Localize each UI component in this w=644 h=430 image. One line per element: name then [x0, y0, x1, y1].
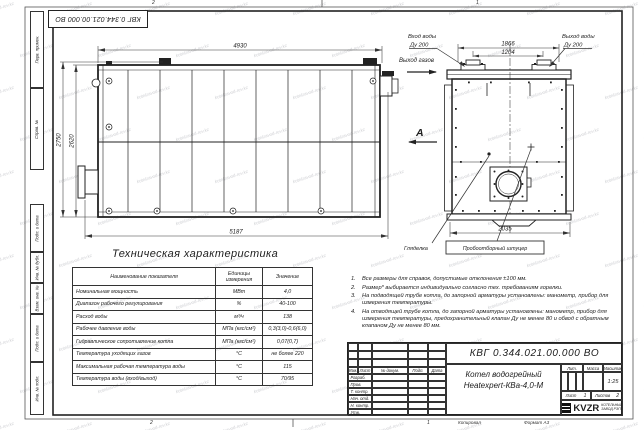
- scale-label: Масштаб: [603, 364, 623, 372]
- spec-name: Номинальная мощность: [73, 286, 216, 298]
- sampling-label: Пробоотборный штуцер: [463, 245, 528, 252]
- boiler-side-view: [78, 58, 398, 217]
- note-text: Все размеры для справок, допустимые откл…: [362, 276, 527, 283]
- spec-units: МПа (кгс/см²): [216, 336, 263, 348]
- sig-prov: Пров.: [348, 381, 372, 388]
- dim-2035: 2035: [497, 227, 512, 233]
- company-cell: KVZR КОТЕЛЬНЫЙ ЗАВОД РЭП: [561, 400, 623, 416]
- spec-value: не более 220: [263, 349, 312, 361]
- note-number: 2.: [351, 285, 362, 292]
- margin-stamp-perv-primen: Перв. примен.: [30, 11, 44, 88]
- spec-value: 0,3(3,0)-0,6(6,0): [263, 324, 312, 336]
- spec-col-value: Значение: [263, 268, 312, 285]
- spec-name: Расход воды: [73, 311, 216, 323]
- product-name-line1: Котел водогрейный: [465, 370, 541, 381]
- note-item: 1.Все размеры для справок, допустимые от…: [351, 276, 615, 283]
- side-nozzle: [92, 79, 100, 87]
- view-a-label: А: [415, 127, 424, 139]
- col-izm: Изм.: [348, 367, 358, 374]
- margin-stamp-label: Перв. примен.: [35, 36, 40, 64]
- company-name-line2: ЗАВОД РЭП: [601, 407, 620, 411]
- spec-value: 4,0: [263, 286, 312, 298]
- note-text: Размер* выбирается индивидуально согласн…: [362, 285, 563, 292]
- note-item: 2.Размер* выбирается индивидуально согла…: [351, 285, 615, 292]
- spec-row: Температура воды (вход/выход)°С70/95: [73, 373, 312, 386]
- water-inlet-dn: Ду 200: [409, 43, 429, 49]
- col-sign: Подп.: [408, 367, 428, 374]
- company-name: КОТЕЛЬНЫЙ ЗАВОД РЭП: [601, 404, 622, 411]
- note-item: 4.На отводящей трубе котла, до запорной …: [351, 309, 615, 330]
- product-name-line2: Heatexpert-КВа-4,0-М: [464, 381, 543, 392]
- sig-razrab: Разраб.: [348, 374, 372, 381]
- sig-tkontr: Т. контр.: [348, 388, 372, 395]
- boiler-rear-view: [445, 44, 574, 233]
- water-flanges: [461, 60, 556, 70]
- zone-number: 2: [152, 0, 155, 6]
- note-text: На подводящей трубе котла, до запорной а…: [362, 293, 615, 307]
- spec-table-header: Наименование показателя Единицы измерени…: [73, 268, 312, 285]
- spec-value: 40-100: [263, 299, 312, 311]
- margin-stamp-vzam-inv: Взам. инв. №: [30, 283, 44, 314]
- drawing-sheet: kotelzavod-rev.kzkotelzavod-rev.kzkotelz…: [0, 0, 644, 430]
- designation-stamp-rotated: КВГ 0.344.021.00.000 ВО: [48, 10, 148, 28]
- note-text: На отводящей трубе котла, до запорной ар…: [362, 309, 615, 330]
- spec-row: Расход водым³/ч138: [73, 310, 312, 323]
- margin-stamp-label: Инв. № дубл.: [35, 255, 40, 281]
- gas-outlet-stub: [380, 71, 398, 96]
- water-outlet-dn: Ду 200: [563, 43, 583, 49]
- sheet-cell: Лист1: [561, 391, 591, 400]
- sheets-cell: Листов2: [591, 391, 623, 400]
- spec-name: Температура воды (вход/выход): [73, 374, 216, 386]
- spec-row: Рабочее давление водыМПа (кгс/см²)0,3(3,…: [73, 323, 312, 336]
- col-doc: № докум.: [372, 367, 408, 374]
- dim-4930: 4930: [233, 44, 247, 50]
- spec-name: Температура уходящих газов: [73, 349, 216, 361]
- spec-table: Наименование показателя Единицы измерени…: [72, 267, 313, 386]
- dim-1204: 1204: [501, 50, 515, 56]
- note-number: 3.: [351, 293, 362, 307]
- zone-number: 1: [476, 0, 479, 6]
- sig-nkontr: Н. контр.: [348, 402, 372, 409]
- spec-name: Максимальная рабочая температура воды: [73, 361, 216, 373]
- col-date: Дата: [428, 367, 446, 374]
- spec-value: 138: [263, 311, 312, 323]
- spec-value: 70/95: [263, 374, 312, 386]
- gas-outlet-label: Выход газов: [399, 58, 434, 64]
- spec-col-units: Единицы измерения: [216, 268, 263, 285]
- note-item: 3.На подводящей трубе котла, до запорной…: [351, 293, 615, 307]
- zone-number: 1: [427, 420, 430, 426]
- sig-utv: Утв.: [348, 409, 372, 416]
- scale-value: 1:25: [603, 372, 623, 391]
- water-inlet-label: Вход воды: [408, 34, 437, 40]
- format-label: Формат А3: [524, 420, 549, 425]
- spec-units: МПа (кгс/см²): [216, 324, 263, 336]
- sheets-value: 2: [616, 393, 619, 399]
- burner-flange: [78, 166, 98, 198]
- spec-col-name: Наименование показателя: [73, 268, 216, 285]
- dim-2620: 2620: [70, 134, 76, 149]
- margin-stamp-label: Инв. № подл.: [35, 376, 40, 402]
- spec-units: °С: [216, 374, 263, 386]
- spec-row: Температура уходящих газов°Сне более 220: [73, 348, 312, 361]
- lit-label: Лит.: [561, 364, 583, 372]
- sight-glass-point: [487, 152, 490, 155]
- sheet-value: 1: [584, 393, 587, 399]
- sheets-label: Листов: [595, 393, 610, 398]
- margin-stamp-inv-podl: Инв. № подл.: [30, 362, 44, 415]
- dim-5187: 5187: [229, 230, 243, 236]
- water-outlet-label: Выход воды: [562, 34, 595, 40]
- margin-stamp-podp-data-2: Подп. и дата: [30, 314, 44, 362]
- title-block: Изм. Лист № докум. Подп. Дата Разраб. Пр…: [347, 342, 622, 415]
- spec-row: Номинальная мощностьМВт4,0: [73, 285, 312, 298]
- bolt-marks: [106, 78, 376, 214]
- sig-nachotd: Нач. отд.: [348, 395, 372, 402]
- notes-block: 1.Все размеры для справок, допустимые от…: [351, 276, 615, 331]
- spec-name: Рабочее давление воды: [73, 324, 216, 336]
- kvzr-logo-text: KVZR: [573, 403, 599, 414]
- spec-value: 0,07(0,7): [263, 336, 312, 348]
- margin-stamp-sprav-no: Справ. №: [30, 88, 44, 170]
- mass-label: Масса: [583, 364, 603, 372]
- spec-row: Диапазон рабочего регулирования%40-100: [73, 298, 312, 311]
- spec-row: Максимальная рабочая температура воды°С1…: [73, 360, 312, 373]
- kvzr-logo: KVZR КОТЕЛЬНЫЙ ЗАВОД РЭП: [561, 403, 622, 414]
- spec-units: м³/ч: [216, 311, 263, 323]
- note-number: 1.: [351, 276, 362, 283]
- margin-stamp-label: Подп. и дата: [35, 215, 40, 241]
- sheet-label: Лист: [566, 393, 577, 398]
- zone-number: 2: [150, 420, 153, 426]
- spec-name: Диапазон рабочего регулирования: [73, 299, 216, 311]
- lifting-lugs: [106, 58, 377, 65]
- col-list: Лист: [358, 367, 372, 374]
- panel-seams: [128, 70, 352, 212]
- spec-units: °С: [216, 349, 263, 361]
- sight-glass-hatch: [490, 167, 531, 201]
- kvzr-logo-icon: [561, 403, 571, 413]
- spec-name: Гидравлическое сопротивление котла: [73, 336, 216, 348]
- spec-value: 115: [263, 361, 312, 373]
- sight-glass-label: Гляделка: [404, 246, 428, 252]
- spec-units: %: [216, 299, 263, 311]
- margin-stamp-label: Взам. инв. №: [35, 286, 40, 312]
- dim-1866: 1866: [501, 42, 515, 48]
- copy-label: Копировал: [458, 420, 481, 425]
- note-number: 4.: [351, 309, 362, 330]
- margin-stamp-label: Подп. и дата: [35, 325, 40, 351]
- spec-table-title: Техническая характеристика: [112, 248, 278, 260]
- margin-stamp-inv-dubl: Инв. № дубл.: [30, 252, 44, 283]
- dim-2750: 2750: [57, 133, 63, 148]
- title-block-designation: КВГ 0.344.021.00.000 ВО: [446, 343, 623, 364]
- spec-units: °С: [216, 361, 263, 373]
- spec-units: МВт: [216, 286, 263, 298]
- spec-row: Гидравлическое сопротивление котлаМПа (к…: [73, 335, 312, 348]
- margin-stamp-podp-data-1: Подп. и дата: [30, 204, 44, 252]
- margin-stamp-label: Справ. №: [35, 119, 40, 138]
- rear-view-dimensions: [409, 44, 592, 243]
- product-name: Котел водогрейный Heatexpert-КВа-4,0-М: [446, 364, 561, 416]
